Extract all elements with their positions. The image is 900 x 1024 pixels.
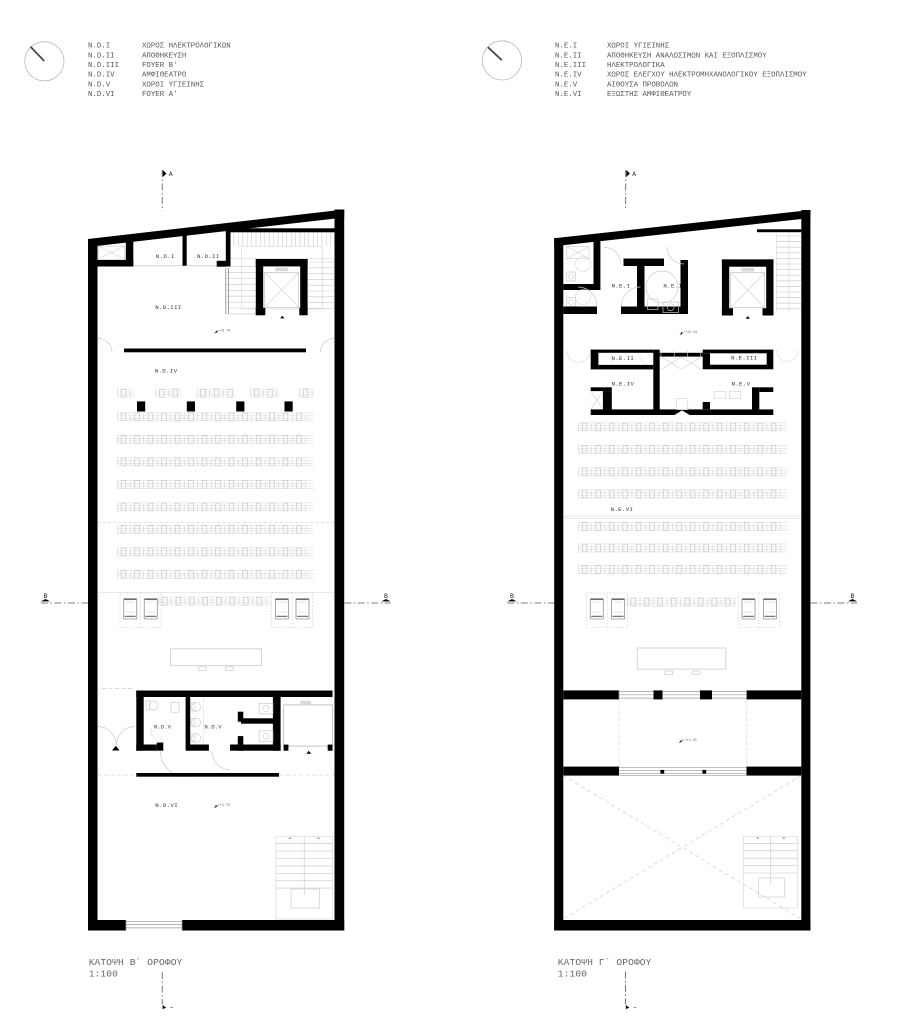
svg-text:N.D.I: N.D.I (88, 43, 110, 51)
svg-text:ΧΩΡΟΣ ΗΛΕΚΤΡΟΛΟΓΙΚΩΝ: ΧΩΡΟΣ ΗΛΕΚΤΡΟΛΟΓΙΚΩΝ (142, 43, 231, 51)
svg-text:ΑΜΦΙΘΕΑΤΡΟ: ΑΜΦΙΘΕΑΤΡΟ (142, 72, 187, 80)
svg-text:N.E.I: N.E.I (612, 283, 631, 290)
svg-text:N.D.VI: N.D.VI (155, 802, 178, 809)
svg-text:N.D.II: N.D.II (88, 52, 115, 60)
svg-text:B: B (44, 593, 48, 600)
svg-text:A: A (169, 171, 173, 178)
svg-text:ΚΑΤΟΨΗ Β´ ΟΡΟΦΟΥ: ΚΑΤΟΨΗ Β´ ΟΡΟΦΟΥ (89, 957, 183, 968)
svg-text:+13.20: +13.20 (685, 739, 697, 743)
svg-text:ΧΩΡΟΣ ΕΛΕΓΧΟΥ ΗΛΕΚΤΡΟΜΗΧΑΝΟΛΟΓ: ΧΩΡΟΣ ΕΛΕΓΧΟΥ ΗΛΕΚΤΡΟΜΗΧΑΝΟΛΟΓΙΚΟΥ ΕΞΟΠΛ… (607, 72, 807, 80)
svg-text:N.E.I: N.E.I (663, 283, 682, 290)
svg-text:N.E.V: N.E.V (732, 380, 751, 387)
svg-text:ΗΛΕΚΤΡΟΛΟΓΙΚΑ: ΗΛΕΚΤΡΟΛΟΓΙΚΑ (607, 62, 665, 70)
svg-text:N.E.II: N.E.II (612, 355, 635, 362)
svg-text:A: A (632, 171, 636, 178)
svg-text:N.E.IV: N.E.IV (612, 381, 635, 388)
svg-text:N.D.III: N.D.III (155, 304, 181, 311)
svg-text:B: B (384, 593, 388, 600)
svg-text:ΕΞΩΣΤΗΣ ΑΜΦΙΘΕΑΤΡΟΥ: ΕΞΩΣΤΗΣ ΑΜΦΙΘΕΑΤΡΟΥ (607, 91, 692, 99)
svg-text:+13.20: +13.20 (685, 331, 697, 335)
svg-text:N.D.I: N.D.I (156, 253, 175, 260)
svg-text:N.D.II: N.D.II (197, 253, 220, 260)
svg-text:FOYER Α': FOYER Α' (142, 91, 177, 99)
svg-text:ΧΩΡΟΙ ΥΓΙΕΙΝΗΣ: ΧΩΡΟΙ ΥΓΙΕΙΝΗΣ (607, 43, 670, 51)
svg-text:N.E.V: N.E.V (555, 81, 578, 89)
svg-text:N.D.V: N.D.V (154, 724, 172, 730)
svg-text:B: B (851, 593, 855, 600)
svg-text:N.D.IV: N.D.IV (88, 72, 115, 80)
svg-text:N.E.IV: N.E.IV (555, 72, 582, 80)
svg-text:ΑΠΟΘΗΚΕΥΣΗ ΑΝΑΛΩΣΙΜΩΝ ΚΑΙ ΕΞΟΠ: ΑΠΟΘΗΚΕΥΣΗ ΑΝΑΛΩΣΙΜΩΝ ΚΑΙ ΕΞΟΠΛΙΣΜΟΥ (607, 52, 767, 60)
svg-text:ΧΩΡΟΙ ΥΓΙΕΙΝΗΣ: ΧΩΡΟΙ ΥΓΙΕΙΝΗΣ (142, 81, 205, 89)
svg-text:ΚΑΤΟΨΗ Γ´ ΟΡΟΦΟΥ: ΚΑΤΟΨΗ Γ´ ΟΡΟΦΟΥ (558, 957, 652, 968)
svg-text:N.D.IV: N.D.IV (155, 368, 178, 375)
svg-text:N.E.VI: N.E.VI (555, 91, 582, 99)
svg-text:B: B (510, 593, 514, 600)
svg-text:N.E.I: N.E.I (555, 43, 577, 51)
svg-text:1:100: 1:100 (558, 969, 587, 980)
svg-text:FOYER Β': FOYER Β' (142, 62, 177, 70)
svg-text:N.E.III: N.E.III (555, 62, 586, 70)
svg-text:ΑΠΟΘΗΚΕΥΣΗ: ΑΠΟΘΗΚΕΥΣΗ (142, 52, 186, 60)
svg-text:N.E.VI: N.E.VI (611, 506, 634, 513)
svg-text:1:100: 1:100 (89, 969, 118, 980)
svg-text:ΑΙΘΟΥΣΑ ΠΡΟΒΟΛΩΝ: ΑΙΘΟΥΣΑ ΠΡΟΒΟΛΩΝ (607, 81, 678, 89)
svg-text:N.D.VI: N.D.VI (88, 91, 115, 99)
svg-text:N.E.III: N.E.III (731, 355, 757, 362)
svg-text:+4.70: +4.70 (220, 804, 230, 808)
svg-text:N.D.V: N.D.V (88, 81, 111, 89)
svg-text:+8.70: +8.70 (220, 330, 230, 334)
svg-text:N.D.III: N.D.III (88, 62, 119, 70)
svg-text:N.E.II: N.E.II (555, 52, 582, 60)
svg-text:N.D.V: N.D.V (205, 724, 223, 730)
